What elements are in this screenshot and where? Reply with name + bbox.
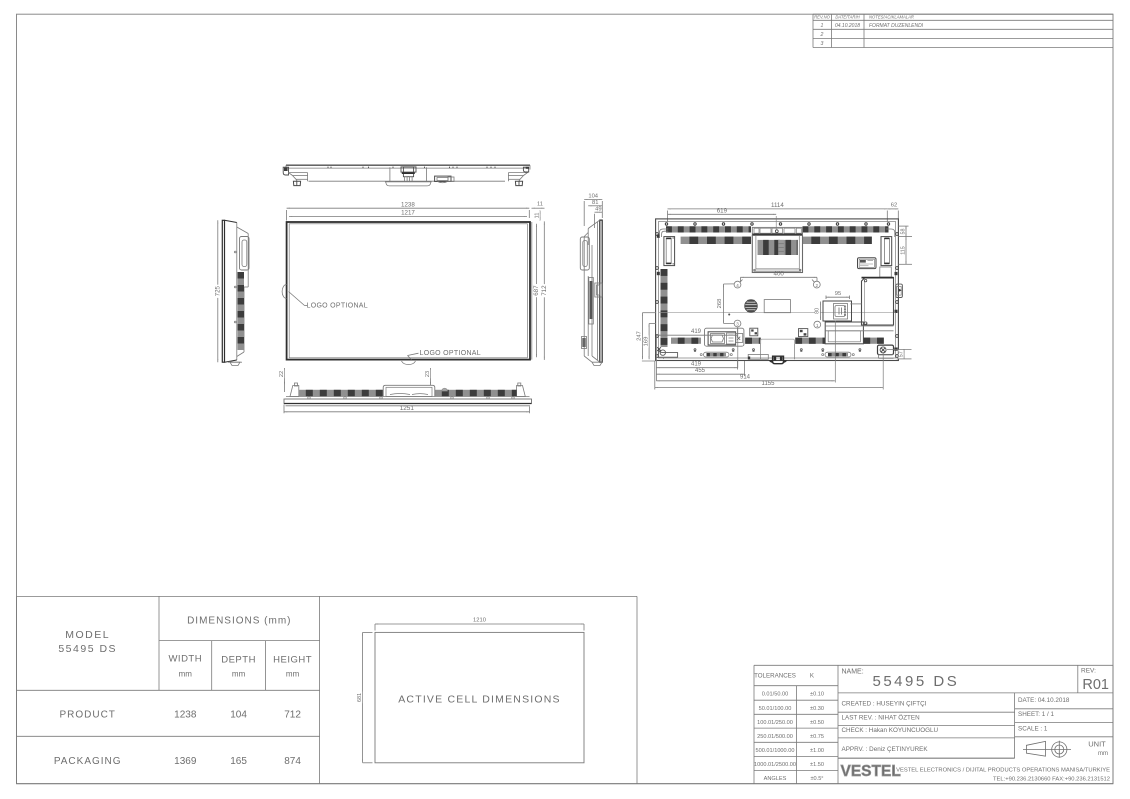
svg-text:1369: 1369 (174, 756, 197, 767)
svg-text:R01: R01 (1082, 677, 1109, 693)
svg-text:REV.NO: REV.NO (814, 15, 830, 20)
svg-text:419: 419 (691, 361, 702, 367)
svg-text:SHEET: 1 / 1: SHEET: 1 / 1 (1018, 711, 1055, 718)
svg-text:PACKAGING: PACKAGING (54, 756, 122, 767)
svg-text:1155: 1155 (762, 381, 776, 387)
svg-text:2: 2 (816, 283, 819, 288)
svg-text:mm: mm (232, 670, 246, 679)
svg-text:1238: 1238 (401, 201, 415, 208)
svg-text:100.01/250.00: 100.01/250.00 (757, 720, 793, 726)
svg-text:3: 3 (821, 41, 824, 47)
svg-text:ANGLES: ANGLES (764, 776, 787, 782)
svg-text:169: 169 (643, 337, 649, 347)
svg-text:LAST REV. : NIHAT ÖZTEN: LAST REV. : NIHAT ÖZTEN (842, 714, 921, 722)
svg-text:0.01/50.00: 0.01/50.00 (762, 692, 788, 698)
svg-text:1210: 1210 (473, 618, 486, 624)
svg-text:500.01/1000.00: 500.01/1000.00 (756, 748, 795, 754)
svg-text:APPRV. : Deniz ÇETINYUREK: APPRV. : Deniz ÇETINYUREK (842, 746, 929, 753)
svg-text:LOGO OPTIONAL: LOGO OPTIONAL (307, 303, 368, 310)
svg-text:1238: 1238 (174, 710, 197, 721)
svg-text:419: 419 (691, 329, 702, 335)
svg-text:±0.10: ±0.10 (810, 692, 824, 698)
svg-text:TOLERANCES: TOLERANCES (754, 673, 796, 680)
svg-text:681: 681 (357, 693, 363, 702)
svg-text:1251: 1251 (400, 405, 415, 412)
svg-text:22: 22 (279, 371, 285, 377)
svg-text:ACTIVE CELL DIMENSIONS: ACTIVE CELL DIMENSIONS (398, 694, 561, 706)
svg-text:687: 687 (533, 285, 540, 296)
svg-text:55495 DS: 55495 DS (58, 643, 117, 655)
svg-text:55495 DS: 55495 DS (873, 673, 960, 690)
svg-text:±0.5°: ±0.5° (810, 776, 823, 782)
svg-text:±0.50: ±0.50 (810, 720, 824, 726)
svg-text:2: 2 (820, 32, 824, 38)
svg-text:mm: mm (179, 670, 193, 679)
svg-text:50.01/100.00: 50.01/100.00 (759, 706, 792, 712)
svg-text:725: 725 (214, 285, 221, 296)
svg-text:MODEL: MODEL (65, 629, 110, 641)
svg-text:3: 3 (736, 322, 739, 327)
svg-text:CREATED : HUSEYIN ÇIFTÇI: CREATED : HUSEYIN ÇIFTÇI (842, 701, 927, 708)
svg-text:1217: 1217 (401, 210, 415, 217)
svg-text:4: 4 (736, 283, 739, 288)
svg-text:PRODUCT: PRODUCT (59, 710, 115, 721)
svg-text:±0.30: ±0.30 (810, 706, 824, 712)
svg-text:NOTES/ACIKLAMALAR: NOTES/ACIKLAMALAR (869, 15, 914, 20)
svg-text:±1.50: ±1.50 (810, 762, 824, 768)
svg-text:DEPTH: DEPTH (221, 655, 256, 666)
svg-text:04.10.2018: 04.10.2018 (835, 23, 860, 29)
svg-text:CHECK : Hakan KOYUNCUOGLU: CHECK : Hakan KOYUNCUOGLU (842, 727, 939, 734)
svg-text:712: 712 (541, 285, 548, 296)
svg-text:104: 104 (230, 710, 247, 721)
svg-text:914: 914 (740, 374, 751, 380)
svg-text:HEIGHT: HEIGHT (273, 655, 312, 666)
svg-text:57: 57 (899, 351, 905, 357)
svg-text:11: 11 (535, 212, 541, 218)
svg-text:95: 95 (835, 291, 841, 297)
svg-text:11: 11 (537, 202, 543, 208)
svg-text:712: 712 (284, 710, 301, 721)
svg-text:619: 619 (717, 208, 728, 215)
svg-text:REV:: REV: (1081, 668, 1096, 675)
svg-text:104: 104 (588, 194, 598, 200)
svg-text:VESTEL ELECTRONICS / DIJITAL P: VESTEL ELECTRONICS / DIJITAL PRODUCTS OP… (896, 768, 1110, 774)
svg-text:49: 49 (595, 206, 601, 212)
svg-text:VESTEL: VESTEL (841, 763, 901, 780)
svg-text:DIMENSIONS (mm): DIMENSIONS (mm) (187, 616, 291, 627)
svg-text:UNIT: UNIT (1088, 740, 1106, 749)
svg-text:SCALE : 1: SCALE : 1 (1018, 726, 1048, 733)
svg-text:268: 268 (717, 299, 723, 309)
svg-text:165: 165 (230, 756, 247, 767)
svg-text:1114: 1114 (771, 202, 784, 209)
svg-text:81: 81 (592, 200, 598, 206)
svg-text:62: 62 (891, 202, 897, 208)
svg-text:247: 247 (637, 331, 643, 341)
svg-text:mm: mm (286, 670, 300, 679)
svg-text:LOGO OPTIONAL: LOGO OPTIONAL (420, 350, 481, 357)
svg-text:250.01/500.00: 250.01/500.00 (757, 734, 793, 740)
svg-text:TEL:+90.236.2130660 FAX:+90.23: TEL:+90.236.2130660 FAX:+90.236.2131512 (993, 777, 1110, 783)
svg-text:58: 58 (900, 229, 906, 235)
svg-text:115: 115 (900, 246, 906, 255)
svg-text:1000.01/2500.00: 1000.01/2500.00 (754, 762, 796, 768)
svg-text:DATE/TARIH: DATE/TARIH (835, 15, 860, 20)
svg-text:FORMAT DUZENLENDI: FORMAT DUZENLENDI (869, 23, 924, 29)
svg-text:455: 455 (695, 368, 706, 374)
svg-text:23: 23 (425, 371, 431, 377)
svg-text:±0.75: ±0.75 (810, 734, 824, 740)
svg-text:NAME:: NAME: (842, 669, 864, 676)
svg-text:80: 80 (815, 308, 821, 314)
svg-text:WIDTH: WIDTH (168, 654, 202, 665)
svg-text:1: 1 (821, 23, 824, 29)
svg-text:K: K (810, 673, 815, 680)
svg-text:874: 874 (284, 756, 301, 767)
svg-text:DATE: 04.10.2018: DATE: 04.10.2018 (1018, 697, 1070, 704)
svg-text:1: 1 (816, 323, 819, 328)
svg-text:400: 400 (774, 271, 785, 278)
svg-text:mm: mm (1098, 751, 1108, 757)
svg-text:±1.00: ±1.00 (810, 748, 824, 754)
